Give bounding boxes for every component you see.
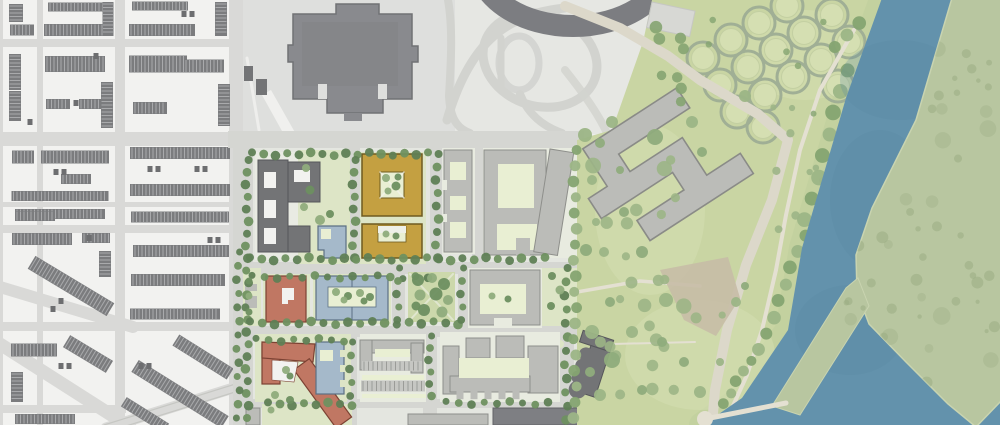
street [0,225,246,233]
residential-block [528,346,558,393]
facade-notch [340,365,345,372]
city-block-feature [130,184,230,196]
city-block-feature [15,414,75,424]
courtyard [450,222,466,238]
ramp [448,0,451,96]
city-block-feature [133,102,167,114]
arena-annex [344,113,362,121]
small-building [244,66,253,81]
lightwell [264,200,276,218]
courtyard [450,162,466,180]
building-wing [516,238,530,255]
city-block-feature [61,174,91,184]
planting-strip [362,394,426,398]
map-canvas [0,0,1000,425]
city-block-feature [101,82,113,128]
planting-strip [362,375,424,380]
city-block-feature [12,233,72,245]
lightwell [264,172,276,188]
city-block-feature [11,344,57,357]
arena-notch [318,84,327,99]
existing-industrial-building [288,226,310,252]
street [0,132,246,146]
lightwell [294,170,310,182]
city-block-feature [132,2,188,11]
city-block-feature [12,151,34,164]
city-block-feature [11,372,23,402]
city-block-feature [10,25,34,36]
street [115,0,125,425]
building-gap [494,318,512,326]
courtyard-terrace [378,226,406,233]
lightwell [264,228,276,244]
city-block-feature [129,56,187,73]
city-block-feature [9,54,21,90]
small-building [256,79,267,95]
courtyard [480,284,526,314]
park-feature [777,61,809,93]
facade-notch [340,380,345,387]
city-block-feature [129,24,195,36]
city-block-feature [41,151,109,164]
city-block-feature [15,211,55,221]
street [0,0,3,425]
terracotta-building-2 [262,342,315,362]
courtyard [450,196,466,210]
city-block-feature [9,4,23,22]
city-block-feature [131,212,229,223]
parking-row [362,361,422,371]
street [0,39,246,47]
city-block-feature [44,24,106,36]
city-block-feature [99,251,111,277]
city-block-feature [218,84,230,126]
city-block-feature [184,60,224,73]
city-block-feature [79,99,101,109]
city-block-feature [12,191,109,201]
city-block-feature [131,274,225,286]
boulevard [228,131,584,148]
courtyard [498,164,534,208]
city-block-feature [9,91,21,121]
city-block-feature [103,2,114,36]
layer-city-grid [0,0,248,425]
city-block-feature [130,309,220,320]
courtyard [375,349,410,357]
city-block-feature [215,2,227,36]
city-block-feature [48,3,106,12]
city-block-feature [82,233,110,243]
arena-notch [378,84,387,99]
residential-block [450,376,530,392]
layer-arena-plaza [243,0,455,140]
arena-roof [302,22,398,86]
city-block-feature [46,99,70,109]
parking-row [361,381,425,392]
city-block-feature [133,245,229,257]
site-plan-map [0,0,1000,425]
alley [0,202,229,207]
green-roof [321,229,331,239]
building-gap [442,180,447,190]
courtyard [459,358,529,378]
building-partial [408,414,488,425]
residential-block [466,338,490,358]
city-block-feature [130,147,230,159]
blue-building-south [316,342,344,394]
green-roof [320,350,333,361]
layer-campus [232,148,583,425]
facade-notch [340,350,345,357]
residential-block [496,336,524,358]
park-feature [732,51,764,83]
